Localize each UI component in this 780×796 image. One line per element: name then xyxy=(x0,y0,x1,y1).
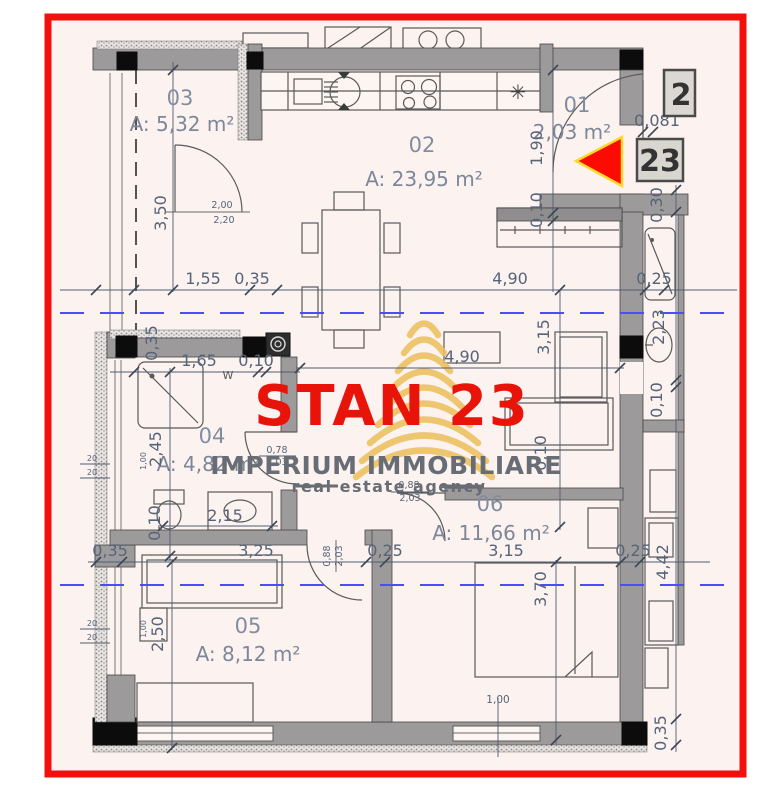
door-05-height: 2,03 xyxy=(334,545,345,566)
dim-315-living: 3,15 xyxy=(534,319,553,355)
dim-035-corner: 0,35 xyxy=(651,715,670,751)
dim-223: 2,23 xyxy=(649,309,668,345)
watermark: STAN 23 IMPERIUM IMMOBILIARE real estate… xyxy=(210,374,562,496)
dim-490-mid: 4,90 xyxy=(444,347,480,366)
dim-325: 3,25 xyxy=(238,541,274,560)
dim-20-c: 20 xyxy=(87,619,97,628)
dim-155: 1,55 xyxy=(185,269,221,288)
floor-plan-canvas: ✳ xyxy=(0,0,780,796)
door-03-width: 2,00 xyxy=(211,200,232,211)
room-02-area: A: 23,95 m² xyxy=(365,167,483,191)
dim-025-bottom2: 0,25 xyxy=(615,541,651,560)
dim-190: 1,90 xyxy=(527,130,546,166)
dim-010-right: 0,10 xyxy=(647,382,666,418)
dim-315-bottom: 3,15 xyxy=(488,541,524,560)
asterisk-symbol-icon: ✳ xyxy=(510,80,527,104)
unit-number-badge: 23 xyxy=(637,139,683,181)
room-03-number: 03 xyxy=(167,86,194,110)
dim-025-top: 0,25 xyxy=(636,269,672,288)
dim-245: 2,45 xyxy=(146,431,165,467)
room-02-number: 02 xyxy=(409,133,436,157)
watermark-agency: IMPERIUM IMMOBILIARE xyxy=(210,451,562,480)
kitchen-counter: ✳ xyxy=(261,72,540,110)
unit-number: 23 xyxy=(639,144,681,179)
washer-label: W xyxy=(223,369,234,382)
dim-010-mid: 0,10 xyxy=(238,351,274,370)
door-05-width: 0,88 xyxy=(322,545,333,566)
room-04-number: 04 xyxy=(199,424,226,448)
room-05-area: A: 8,12 m² xyxy=(196,642,301,666)
dim-250: 2,50 xyxy=(148,616,167,652)
dim-035-left: 0,35 xyxy=(142,325,161,361)
room-01-number: 01 xyxy=(564,93,591,117)
dim-350: 3,50 xyxy=(151,195,170,231)
dim-20-b: 20 xyxy=(87,468,97,477)
dim-215: 2,15 xyxy=(207,506,243,525)
dim-370: 3,70 xyxy=(531,571,550,607)
dim-025-bottom1: 0,25 xyxy=(367,541,403,560)
dim-035-bottom: 0,35 xyxy=(92,541,128,560)
dim-010-hall: 0,10 xyxy=(527,192,546,228)
dim-100-left2: 1,00 xyxy=(139,620,148,638)
dim-030: 0,30 xyxy=(647,187,666,223)
room-03-area: A: 5,32 m² xyxy=(130,112,235,136)
neighbor-unit-badge: 2 xyxy=(664,70,695,116)
dim-010-bath: 0,10 xyxy=(145,505,164,541)
dim-165: 1,65 xyxy=(181,351,217,370)
room-05-number: 05 xyxy=(235,614,262,638)
neighbor-unit-number: 2 xyxy=(671,78,692,113)
dim-490-top: 4,90 xyxy=(492,269,528,288)
dim-442: 4,42 xyxy=(653,544,672,580)
dim-20-a: 20 xyxy=(87,454,97,463)
watermark-title: STAN 23 xyxy=(254,374,530,439)
dim-100-window: 1,00 xyxy=(486,694,509,706)
dim-035-top: 0,35 xyxy=(234,269,270,288)
dim-100-left1: 1,00 xyxy=(139,452,148,470)
dim-20-d: 20 xyxy=(87,633,97,642)
door-03-height: 2,20 xyxy=(213,215,234,226)
